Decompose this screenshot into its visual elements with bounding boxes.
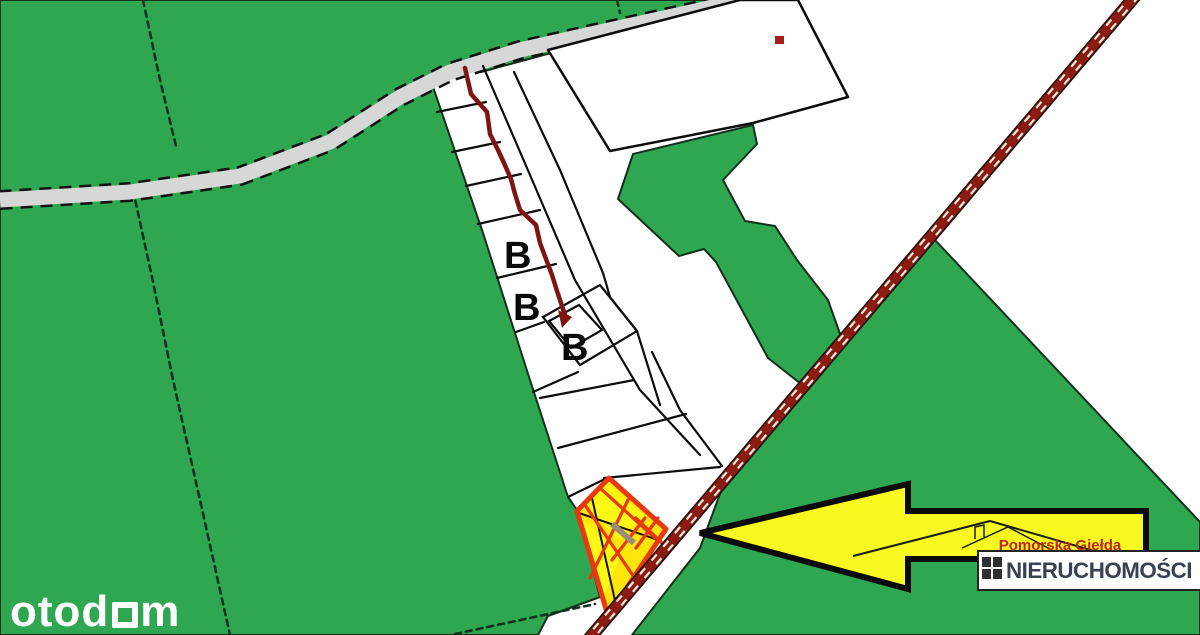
cadastral-map: B B B Pomorska Giełda NIERUCHOMOŚCI otod [0,0,1200,635]
b-label-3: B [561,327,588,369]
parcel-top-line [604,467,720,478]
otodom-watermark-part1: otod [10,587,109,635]
strip-divider [533,372,578,392]
b-label-2: B [513,287,540,329]
otodom-watermark-part2: m [140,587,180,635]
map-svg: B B B Pomorska Giełda NIERUCHOMOŚCI [0,0,1200,635]
b-label-1: B [504,235,531,277]
agency-name-bottom: NIERUCHOMOŚCI [1006,558,1192,583]
strip-divider [558,414,686,448]
strip-near-rail [652,352,722,466]
otodom-watermark: otod m [10,592,180,632]
otodom-square-glyph-icon [112,602,138,628]
red-dot-marker [775,36,784,44]
